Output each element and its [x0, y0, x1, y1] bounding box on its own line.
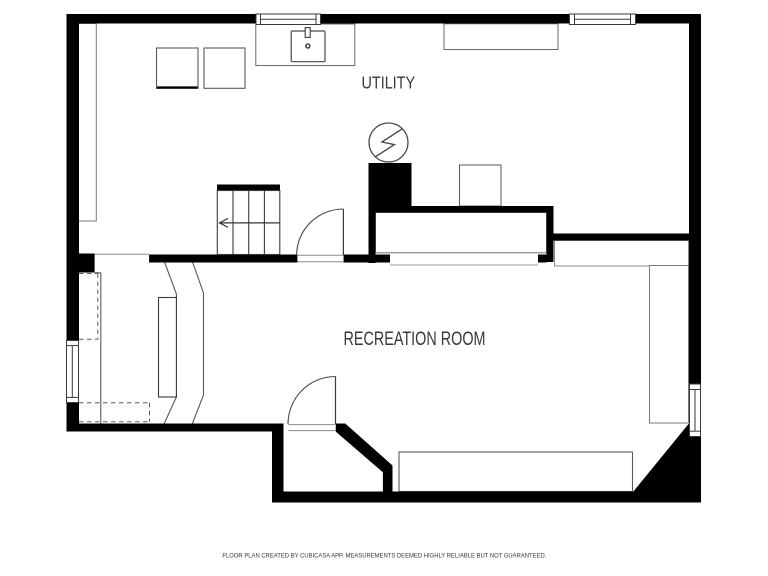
svg-text:FLOOR PLAN CREATED BY CUBICASA: FLOOR PLAN CREATED BY CUBICASA APP. MEAS… [222, 553, 546, 560]
svg-text:UTILITY: UTILITY [362, 73, 416, 93]
svg-text:RECREATION ROOM: RECREATION ROOM [344, 328, 486, 350]
